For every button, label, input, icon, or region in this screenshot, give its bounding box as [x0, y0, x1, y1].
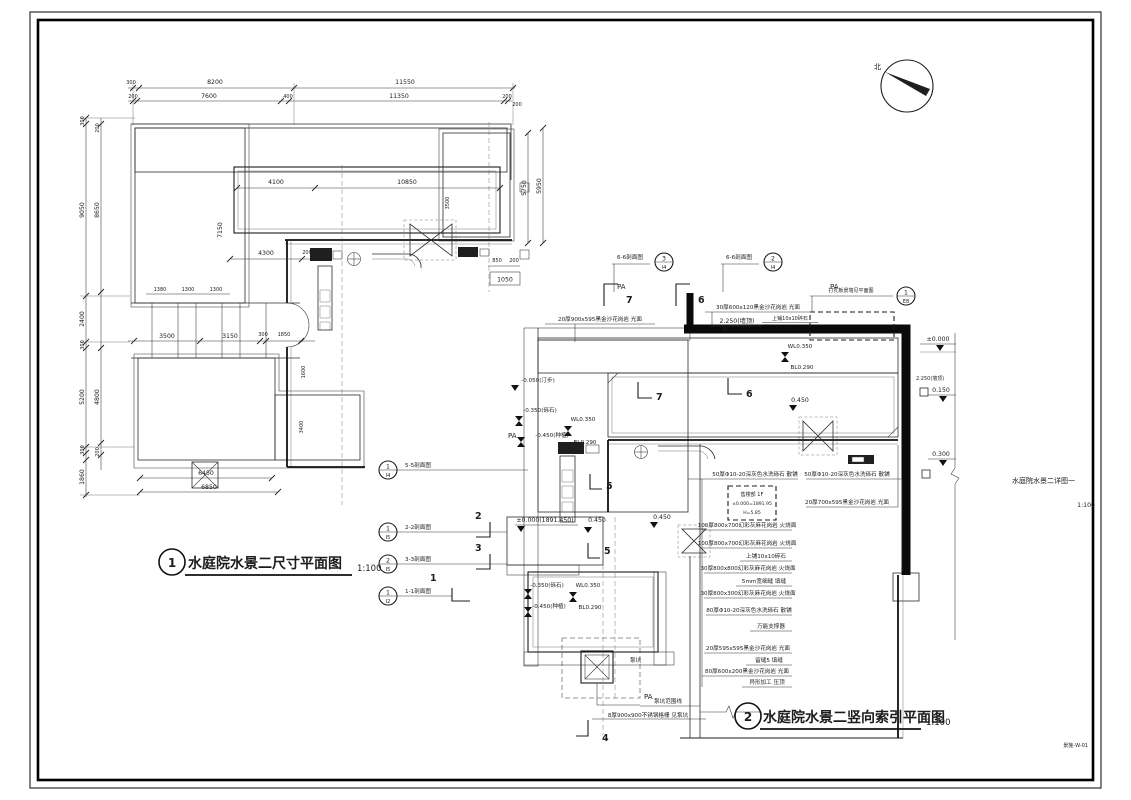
elevation-label: ±0.000(1891.450) — [516, 517, 573, 524]
elevation-label: 0.150 — [932, 387, 950, 394]
drawing-sheet: 北 — [0, 0, 1131, 800]
section-cut-number: 7 — [656, 392, 663, 403]
dim-label: 400 — [283, 94, 293, 100]
dim-label: 200 — [95, 123, 101, 133]
sales-office-box: 售楼部 1F ±0.000=1891.95 H=5.85 — [728, 486, 776, 520]
plan1-title-block: 1 水庭院水景二尺寸平面图 1:100 — [159, 549, 382, 575]
material-note: 5mm宽细缝 填缝 — [742, 577, 787, 585]
dim-label: 200 — [509, 258, 519, 264]
plan1-pool-edge — [234, 167, 500, 233]
elevation-label: -0.050(汀步) — [521, 377, 555, 384]
curved-counter — [372, 254, 421, 268]
section-label: 5-5剖面图 — [405, 461, 431, 469]
dim-label: 300 — [258, 332, 268, 338]
elevation-label: -0.450(种植) — [535, 431, 569, 439]
material-note: 100厚800x700幻彩灰麻花岗岩 火烧面 — [698, 539, 797, 547]
elevation-label: -0.350(砾石) — [523, 406, 557, 414]
section-bubble-3-3: 2 I5 — [379, 555, 397, 573]
plan2-pump-pit: 泵坑 泵坑范围线 8厚900x900不锈钢格栅 见泵坑 4 — [562, 638, 706, 744]
section-cut-number: 6 — [746, 389, 753, 400]
elevation-label: 0.450 — [653, 514, 671, 521]
water-level-label: WL0.350 — [571, 417, 596, 423]
bubble-number: 1 — [386, 590, 390, 597]
plan1-planting-hatch — [131, 124, 514, 468]
break-line — [700, 706, 762, 718]
dim-label: 850 — [492, 258, 502, 264]
material-note: 80厚Φ10-20深灰色水洗砾石 散铺 — [706, 606, 792, 614]
pump-note: 泵坑范围线 — [654, 697, 682, 705]
section-cut-number: 7 — [626, 295, 633, 306]
dim-label: 7150 — [217, 222, 224, 238]
material-note: 20厚900x595黑金沙花岗岩 光面 — [558, 315, 642, 323]
elevation-label: 2.250(墙顶) — [720, 317, 755, 325]
dim-label: 5750 — [521, 180, 528, 196]
detail-bubble-wall: 1 E8 — [897, 287, 915, 305]
pa-label: PA — [830, 283, 839, 291]
section-bubble-2-2: 1 I5 — [379, 523, 397, 541]
dim-label: 6450 — [198, 470, 214, 477]
section-cut-number: 2 — [475, 511, 482, 522]
dim-label: 4800 — [94, 389, 101, 405]
dim-label: 4100 — [268, 179, 284, 186]
dim-label: 8200 — [207, 79, 223, 86]
material-note: 留缝5 填缝 — [755, 656, 783, 664]
sales-office-elev: ±0.000=1891.95 — [732, 501, 772, 507]
plan1-furniture — [192, 183, 529, 488]
section-cut-number: 5 — [606, 481, 613, 492]
curved-counter — [658, 446, 715, 459]
dim-label: 6850 — [201, 484, 217, 491]
dim-label: 1850 — [278, 332, 291, 338]
section-bubble-1-1: 1 I2 — [379, 587, 397, 605]
dim-label: 200 — [128, 94, 138, 100]
elevation-label: ±0.000 — [927, 336, 950, 343]
dim-label: 1860 — [79, 469, 86, 485]
dim-label: 1050 — [497, 277, 513, 284]
bubble-number: 2 — [771, 256, 775, 263]
dim-label: 3400 — [299, 421, 305, 434]
dim-label: 9050 — [79, 202, 86, 218]
section-bubble-6-6-a: 3 I4 — [655, 253, 673, 271]
material-note: 30厚800x300幻彩灰麻花岗岩 火烧面 — [700, 589, 795, 597]
plan2-notes-right: 50厚Φ10-20深灰色水洗砾石 散铺 50厚Φ10-20深灰色水洗砾石 散铺 … — [688, 445, 902, 687]
elevation-label: 0.450 — [588, 517, 606, 524]
section-cut-number: 3 — [475, 543, 482, 554]
north-label: 北 — [874, 63, 881, 71]
bubble-number: 1 — [386, 526, 390, 533]
bubble-sheet: I2 — [386, 599, 391, 605]
section-cut-number: 1 — [430, 573, 437, 584]
bubble-sheet: I4 — [771, 265, 776, 271]
plan1-dimension-plan: 300 8200 11550 200 7600 400 11350 200 30… — [79, 79, 546, 575]
section-cut-number: 6 — [698, 295, 705, 306]
sales-office-name: 售楼部 1F — [741, 491, 764, 498]
water-level-label: WL0.350 — [788, 344, 813, 350]
section-bubble-6-6-b: 2 I4 — [764, 253, 782, 271]
dim-label: 300 — [80, 116, 86, 126]
dim-label: 300 — [80, 340, 86, 350]
plan1-building-walls — [285, 240, 512, 467]
plan2-index-plan: 泵坑 泵坑范围线 8厚900x900不锈钢格栅 见泵坑 4 7 6 7 6 5 … — [379, 253, 959, 744]
material-note: 30厚800x800幻彩灰麻花岗岩 火烧面 — [700, 564, 795, 572]
material-note: 50厚Φ10-20深灰色水洗砾石 散铺 — [712, 470, 798, 478]
pa-label: PA — [508, 432, 517, 440]
dim-label: 300 — [126, 80, 136, 86]
bubble-number: 2 — [386, 558, 390, 565]
water-level-label: BL0.290 — [791, 365, 814, 371]
plan2-gravel-borders — [507, 328, 919, 666]
water-level-label: BL0.290 — [574, 440, 597, 446]
material-note: 50厚Φ10-20深灰色水洗砾石 散铺 — [804, 470, 890, 478]
material-note: 上铺10x10碎石 — [772, 315, 808, 322]
dim-label: 1300 — [210, 287, 223, 293]
plan2-scale: 1:100 — [926, 718, 951, 728]
section-cut-number: 4 — [602, 733, 609, 744]
material-note: 异形加工 压顶 — [749, 678, 785, 686]
bubble-sheet: E8 — [903, 299, 909, 305]
material-note: 20厚595x595黑金沙花岗岩 光面 — [706, 644, 790, 652]
dim-label: 3150 — [222, 333, 238, 340]
section-label: 3-3剖面图 — [405, 555, 431, 563]
material-note: 万能支撑器 — [757, 622, 785, 630]
dim-label: 4300 — [258, 250, 274, 257]
dim-label: 10850 — [397, 179, 417, 186]
section-cut-number: 5 — [604, 546, 611, 557]
elevation-label: 0.450 — [791, 397, 809, 404]
material-note: 30厚600x120黑金沙花岗岩 光面 — [716, 303, 800, 311]
elevation-label: -0.350(砾石) — [530, 581, 564, 589]
sheet-number: 景施-W-01 — [1063, 742, 1088, 749]
plan1-title: 水庭院水景二尺寸平面图 — [188, 555, 342, 572]
material-note: 上铺10x10碎石 — [746, 552, 786, 560]
pump-label: 泵坑 — [630, 656, 642, 664]
material-note: 100厚800x700幻彩灰麻花岗岩 火烧面 — [698, 521, 797, 529]
bubble-number: 1 — [904, 290, 908, 297]
double-door — [682, 529, 706, 541]
dim-label: 7600 — [201, 93, 217, 100]
bubble-sheet: I4 — [662, 265, 667, 271]
dim-label: 200 — [302, 250, 312, 256]
dim-label: 1600 — [301, 366, 307, 379]
plan2-title: 水庭院水景二竖向索引平面图 — [763, 709, 945, 726]
pump-note: 8厚900x900不锈钢格栅 见泵坑 — [608, 711, 689, 719]
dim-label: 11350 — [389, 93, 409, 100]
bubble-sheet: I5 — [386, 535, 391, 541]
dim-label: 1380 — [154, 287, 167, 293]
plan2-title-block: 2 水庭院水景二竖向索引平面图 1:100 — [735, 703, 951, 729]
plan2-notes-top: 20厚900x595黑金沙花岗岩 光面 30厚600x120黑金沙花岗岩 光面 … — [545, 303, 818, 342]
section-bubble-5-5: 1 I4 — [379, 461, 397, 479]
double-door — [803, 421, 818, 451]
elevation-label: -0.450(种植) — [532, 602, 566, 610]
section-label: 6-6剖面图 — [617, 253, 643, 261]
dim-label: 11550 — [395, 79, 415, 86]
dim-label: 3500 — [159, 333, 175, 340]
dim-label: 1300 — [182, 287, 195, 293]
material-note: 80厚600x200黑金沙花岗岩 光面 — [705, 667, 789, 675]
plan2-title-number: 2 — [744, 710, 752, 724]
dim-label: 200 — [512, 102, 522, 108]
pa-label: PA — [617, 283, 626, 291]
plan2-building — [558, 333, 959, 738]
section-label: 2-2剖面图 — [405, 523, 431, 531]
sheet-side-title: 水庭院水景二详图一 — [1012, 476, 1075, 485]
plan1-scale: 1:100 — [357, 564, 382, 574]
dim-label: 200 — [95, 447, 101, 457]
dim-label: 200 — [502, 94, 512, 100]
north-arrow: 北 — [874, 60, 933, 112]
plan1-title-number: 1 — [168, 556, 176, 570]
dim-label: 300 — [80, 445, 86, 455]
drawing-canvas: 北 — [0, 0, 1131, 800]
dim-label: 8650 — [94, 202, 101, 218]
elevation-label: 0.300 — [932, 451, 950, 458]
dim-label: 3500 — [445, 197, 451, 210]
plan1-dimensions: 300 8200 11550 200 7600 400 11350 200 30… — [79, 79, 546, 498]
material-note: 20厚700x595黑金沙花岗岩 光面 — [805, 498, 889, 506]
pa-label: PA — [644, 693, 653, 701]
bubble-sheet: I5 — [386, 567, 391, 573]
water-level-label: BL0.290 — [579, 605, 602, 611]
dim-label: 5950 — [536, 178, 543, 194]
sales-office-height: H=5.85 — [743, 510, 761, 516]
sheet-margin-texts: 水庭院水景二详图一 1:100 景施-W-01 — [1012, 476, 1095, 749]
bubble-sheet: I4 — [386, 473, 391, 479]
section-label: 1-1剖面图 — [405, 587, 431, 595]
dim-label: 5200 — [79, 389, 86, 405]
plan2-feature-wall — [684, 293, 906, 575]
sheet-side-scale: 1:100 — [1077, 502, 1095, 509]
bubble-number: 3 — [662, 256, 666, 263]
dim-label: 2400 — [79, 311, 86, 327]
bubble-number: 1 — [386, 464, 390, 471]
elevation-label: 2.250(墙顶) — [916, 375, 944, 382]
plan1-stepping-stones — [131, 303, 300, 358]
water-level-label: WL0.350 — [576, 583, 601, 589]
section-label: 6-6剖面图 — [726, 253, 752, 261]
